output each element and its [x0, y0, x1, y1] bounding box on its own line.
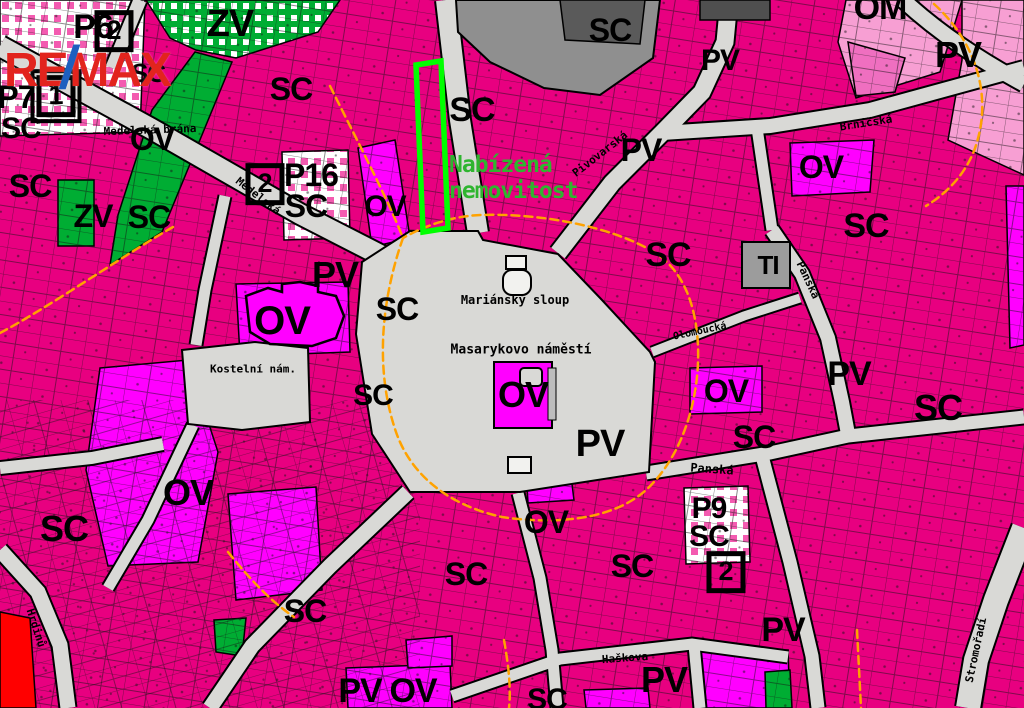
zone-label-ov: OV [704, 375, 748, 407]
zone-label-sc: SC [285, 190, 327, 222]
street-label-brnicska: Brníčská [839, 113, 893, 132]
zone-label-sc: SC [284, 595, 326, 627]
zone-label-sc: SC [449, 93, 494, 127]
zone-label-pv: PV [312, 257, 358, 293]
street-label-medelska-brana: Medelská brána [103, 123, 196, 137]
zone-label-sc: SC [376, 293, 418, 325]
place-label-kostelni-namesti: Kostelní nám. [210, 364, 296, 375]
highlighted-property-label-line1: Nabízená [449, 152, 577, 178]
zone-label-ov: OV [389, 674, 436, 708]
zone-label-sc: SC [527, 685, 567, 708]
zone-label-ov: OV [524, 506, 568, 538]
zone-label-sc: SC [128, 201, 170, 233]
zone-label-pv: PV [935, 37, 981, 73]
zone-label-zv: ZV [74, 200, 113, 232]
zone-label-sc: SC [353, 381, 393, 411]
remax-logo: RE / MAX [4, 36, 170, 105]
highlighted-property-label: Nabízená nemovitost [449, 152, 577, 205]
zone-label-pv: PV [701, 46, 739, 76]
zone-label-zv: ZV [207, 5, 254, 43]
zone-label-pv: PV [641, 662, 687, 698]
zone-label-sc: SC [645, 238, 690, 272]
zone-label-ov: OV [254, 301, 310, 341]
zone-label-p16: P16 [284, 159, 338, 191]
zone-label-sc: SC [9, 170, 51, 202]
zone-label-pv: PV [827, 357, 870, 391]
zone-label-sc: SC [733, 421, 775, 453]
planning-marker-p16: 2 [245, 163, 284, 205]
zone-label-pv: PV [761, 613, 804, 647]
zone-label-ov: OV [498, 377, 548, 413]
zone-label-ti: TI [757, 252, 778, 278]
place-label-masarykovo-namesti: Masarykovo náměstí [451, 344, 592, 357]
zone-label-pv: PV [338, 674, 381, 708]
street-label-stromoradi: Stromořadí [964, 616, 989, 683]
street-label-olomoucka: Olomoucká [672, 321, 727, 342]
zone-label-sc: SC [843, 209, 888, 243]
zone-label-ov: OV [163, 475, 213, 511]
remax-logo-max: MAX [69, 43, 170, 98]
zone-label-sc: SC [589, 14, 631, 46]
street-label-haskova: Haškova [601, 651, 648, 665]
map-labels-layer: P6SCZVSCP7SCSCSCPVOMPVOVSCPVOVSCZVSCP16S… [0, 0, 1024, 708]
highlighted-property-label-line2: nemovitost [449, 178, 577, 204]
zone-label-om: OM [854, 0, 907, 25]
zone-label-pv: PV [576, 425, 625, 463]
planning-marker-p9: 2 [706, 551, 745, 593]
zone-label-sc: SC [611, 550, 653, 582]
zone-label-sc: SC [445, 558, 487, 590]
zone-label-sc: SC [40, 511, 88, 547]
street-label-hrdinu: Hrdinů [25, 607, 48, 648]
zone-label-ov: OV [364, 192, 405, 222]
zoning-map-viewport[interactable]: P6SCZVSCP7SCSCSCPVOMPVOVSCPVOVSCZVSCP16S… [0, 0, 1024, 708]
zone-label-sc: SC [270, 73, 312, 105]
zone-label-sc: SC [689, 522, 729, 552]
street-label-panska-vertical: Panská [795, 260, 822, 301]
zone-label-sc: SC [1, 114, 41, 144]
street-label-panska: Panská [690, 462, 734, 477]
zone-label-ov: OV [799, 151, 843, 183]
place-label-mariansky-sloup: Mariánský sloup [461, 294, 569, 306]
zone-label-sc: SC [914, 390, 962, 426]
